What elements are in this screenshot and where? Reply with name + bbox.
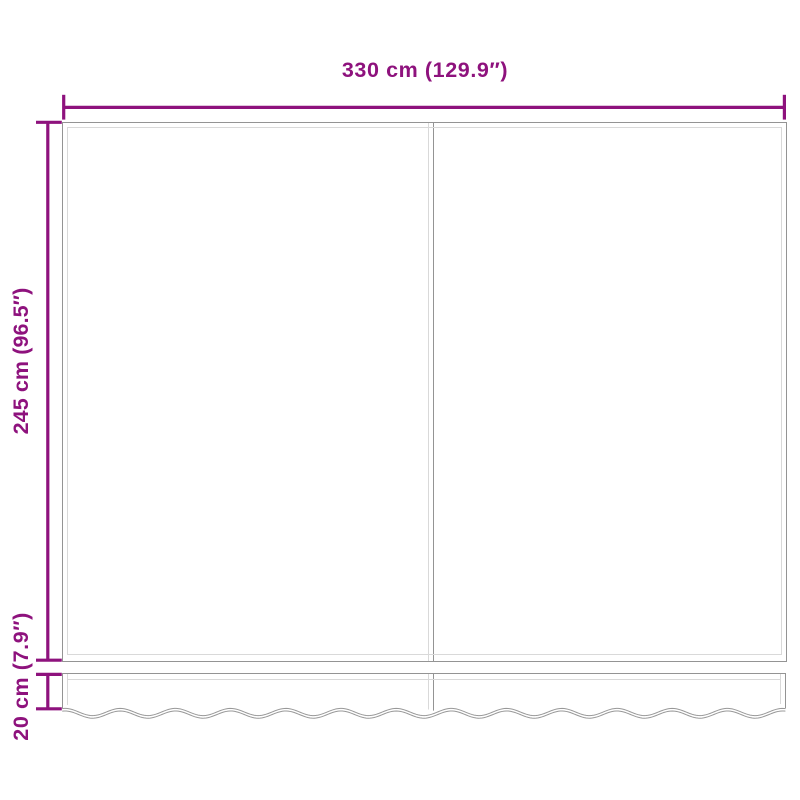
svg-text:245 cm (96.5″): 245 cm (96.5″) <box>9 288 33 435</box>
svg-text:330 cm (129.9″): 330 cm (129.9″) <box>342 58 508 82</box>
svg-text:20 cm (7.9″): 20 cm (7.9″) <box>9 612 33 741</box>
